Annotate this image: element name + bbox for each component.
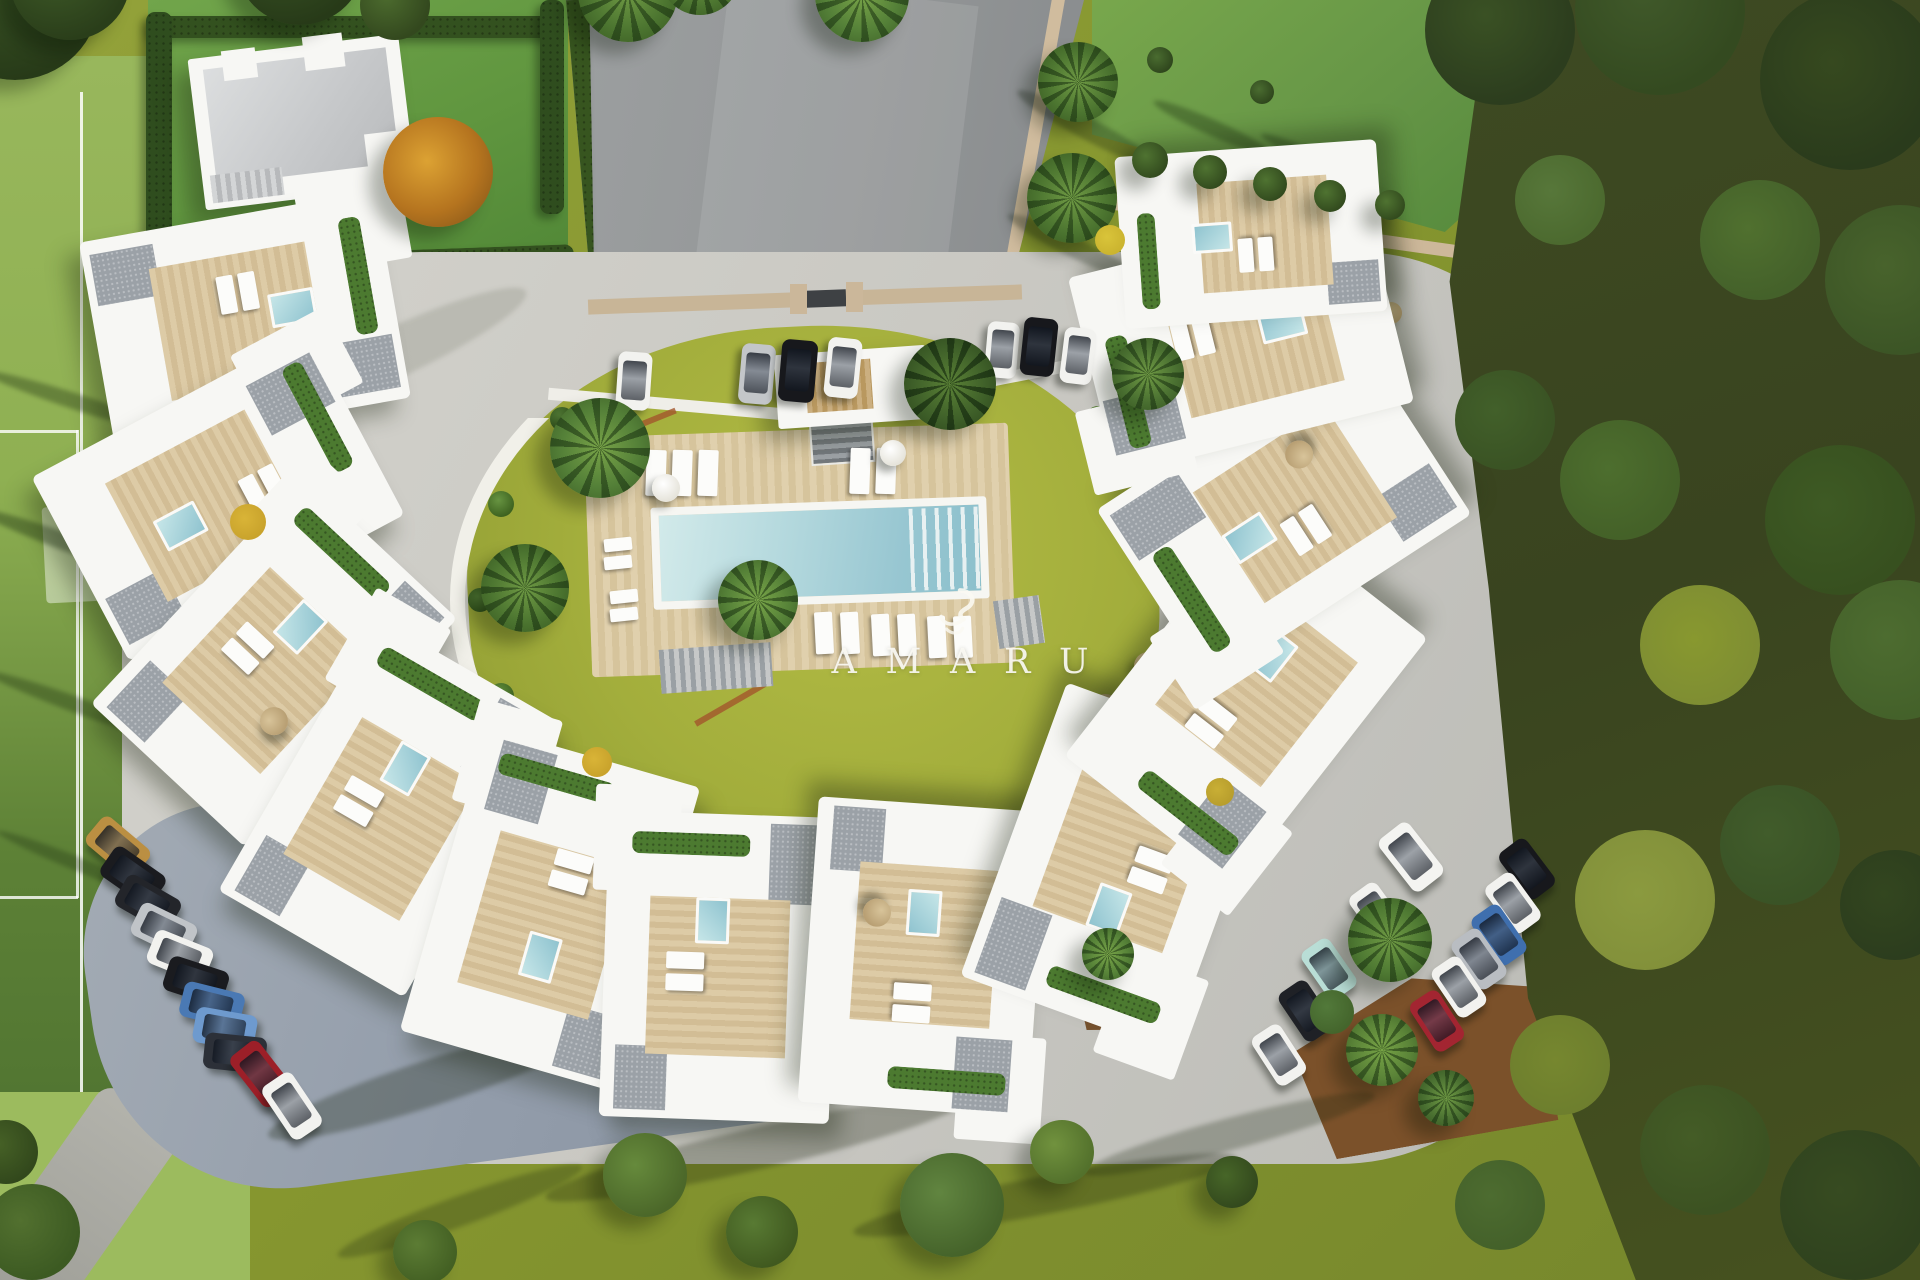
roof-gravel <box>1326 259 1381 305</box>
field-box-top-line <box>0 430 78 433</box>
garden-palm <box>1346 1014 1418 1086</box>
bush <box>1250 80 1274 104</box>
lawn-tree <box>603 1133 687 1217</box>
palm-tree <box>1038 42 1118 122</box>
roof-lounger <box>893 982 932 1002</box>
villa-roof-notch <box>221 47 258 81</box>
sun-lounger <box>697 450 719 497</box>
roof-lounger <box>891 1004 930 1024</box>
autumn-tree <box>383 117 493 227</box>
forest-clearing <box>1640 585 1760 705</box>
courtyard-palm <box>904 338 996 430</box>
lawn-tree <box>1206 1156 1258 1208</box>
roof-lounger <box>665 973 704 991</box>
yellow-bush <box>1095 225 1125 255</box>
yellow-bush <box>230 504 266 540</box>
lawn-tree <box>900 1153 1004 1257</box>
bush <box>1314 180 1346 212</box>
courtyard-palm <box>481 544 569 632</box>
sun-lounger <box>849 448 871 495</box>
garden-palm <box>1418 1070 1474 1126</box>
brand-logo-icon <box>933 584 987 640</box>
forest-tree <box>1515 155 1605 245</box>
forest-clearing <box>1510 1015 1610 1115</box>
villa-roof-notch <box>302 33 346 72</box>
forest-tree <box>1700 180 1820 300</box>
parking-palm <box>1348 898 1432 982</box>
plunge-pool <box>695 897 731 944</box>
bush <box>1253 167 1287 201</box>
lawn-tree <box>726 1196 798 1268</box>
field-box-bottom-line <box>0 896 78 899</box>
aerial-render: AMARU <box>0 0 1920 1280</box>
car <box>1059 326 1098 385</box>
bush <box>1132 142 1168 178</box>
roof-lounger <box>1257 237 1274 272</box>
plot-hedge-top <box>150 16 562 38</box>
car <box>777 339 818 404</box>
plunge-pool <box>1191 221 1233 254</box>
garden-palm <box>1082 928 1134 980</box>
car <box>823 336 863 399</box>
forest-tree <box>1560 420 1680 540</box>
lawn-tree <box>393 1220 457 1280</box>
car <box>737 343 776 406</box>
entry-gate <box>806 289 847 307</box>
roof-planter <box>632 831 751 857</box>
forest-tree <box>1455 370 1555 470</box>
courtyard-palm <box>550 398 650 498</box>
bush <box>1375 190 1405 220</box>
forest-tree <box>1780 1130 1920 1280</box>
parasol-white <box>880 440 906 466</box>
plunge-pool <box>906 889 943 937</box>
lawn-tree <box>1030 1120 1094 1184</box>
planter-dot <box>488 491 514 517</box>
roof-lounger <box>1237 238 1254 273</box>
parasol-white <box>652 474 680 502</box>
roof-gravel <box>613 1044 667 1110</box>
yellow-bush <box>1206 778 1234 806</box>
yellow-bush <box>582 747 612 777</box>
forest-tree <box>1720 785 1840 905</box>
entry-post <box>790 284 807 314</box>
forest-clearing <box>1575 830 1715 970</box>
boardwalk <box>659 642 774 694</box>
garden-bush <box>1310 990 1354 1034</box>
car <box>1019 316 1059 377</box>
roof-lounger <box>666 951 705 969</box>
bush <box>1147 47 1173 73</box>
bush <box>1193 155 1227 189</box>
pool-steps <box>909 506 982 590</box>
watermark: AMARU <box>760 584 1160 682</box>
brand-name: AMARU <box>760 642 1160 682</box>
forest-tree <box>1640 1085 1770 1215</box>
entry-post <box>846 282 863 312</box>
forest-tree <box>1765 445 1915 595</box>
plot-hedge-right <box>540 0 564 214</box>
forest-tree <box>1455 1160 1545 1250</box>
courtyard-palm <box>1112 338 1184 410</box>
